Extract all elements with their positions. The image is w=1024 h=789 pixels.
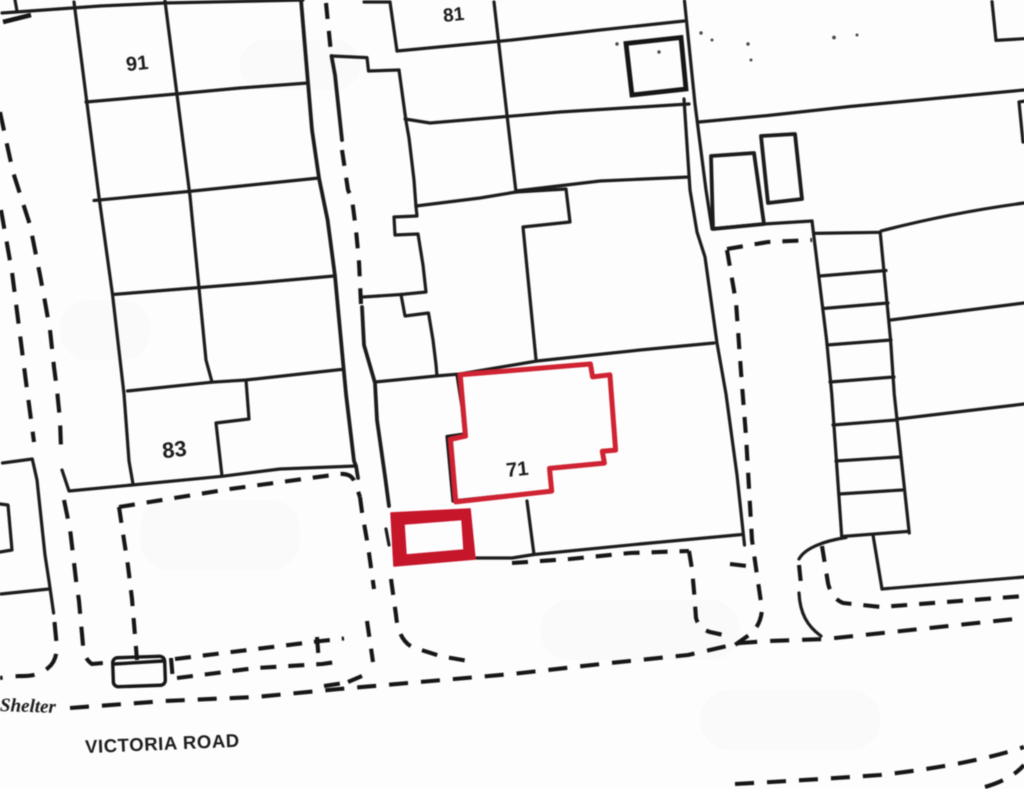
svg-text:Shelter: Shelter [0,695,57,718]
svg-text:91: 91 [125,52,149,76]
svg-text:81: 81 [442,4,466,27]
svg-text:71: 71 [505,458,529,482]
svg-text:83: 83 [161,436,188,463]
